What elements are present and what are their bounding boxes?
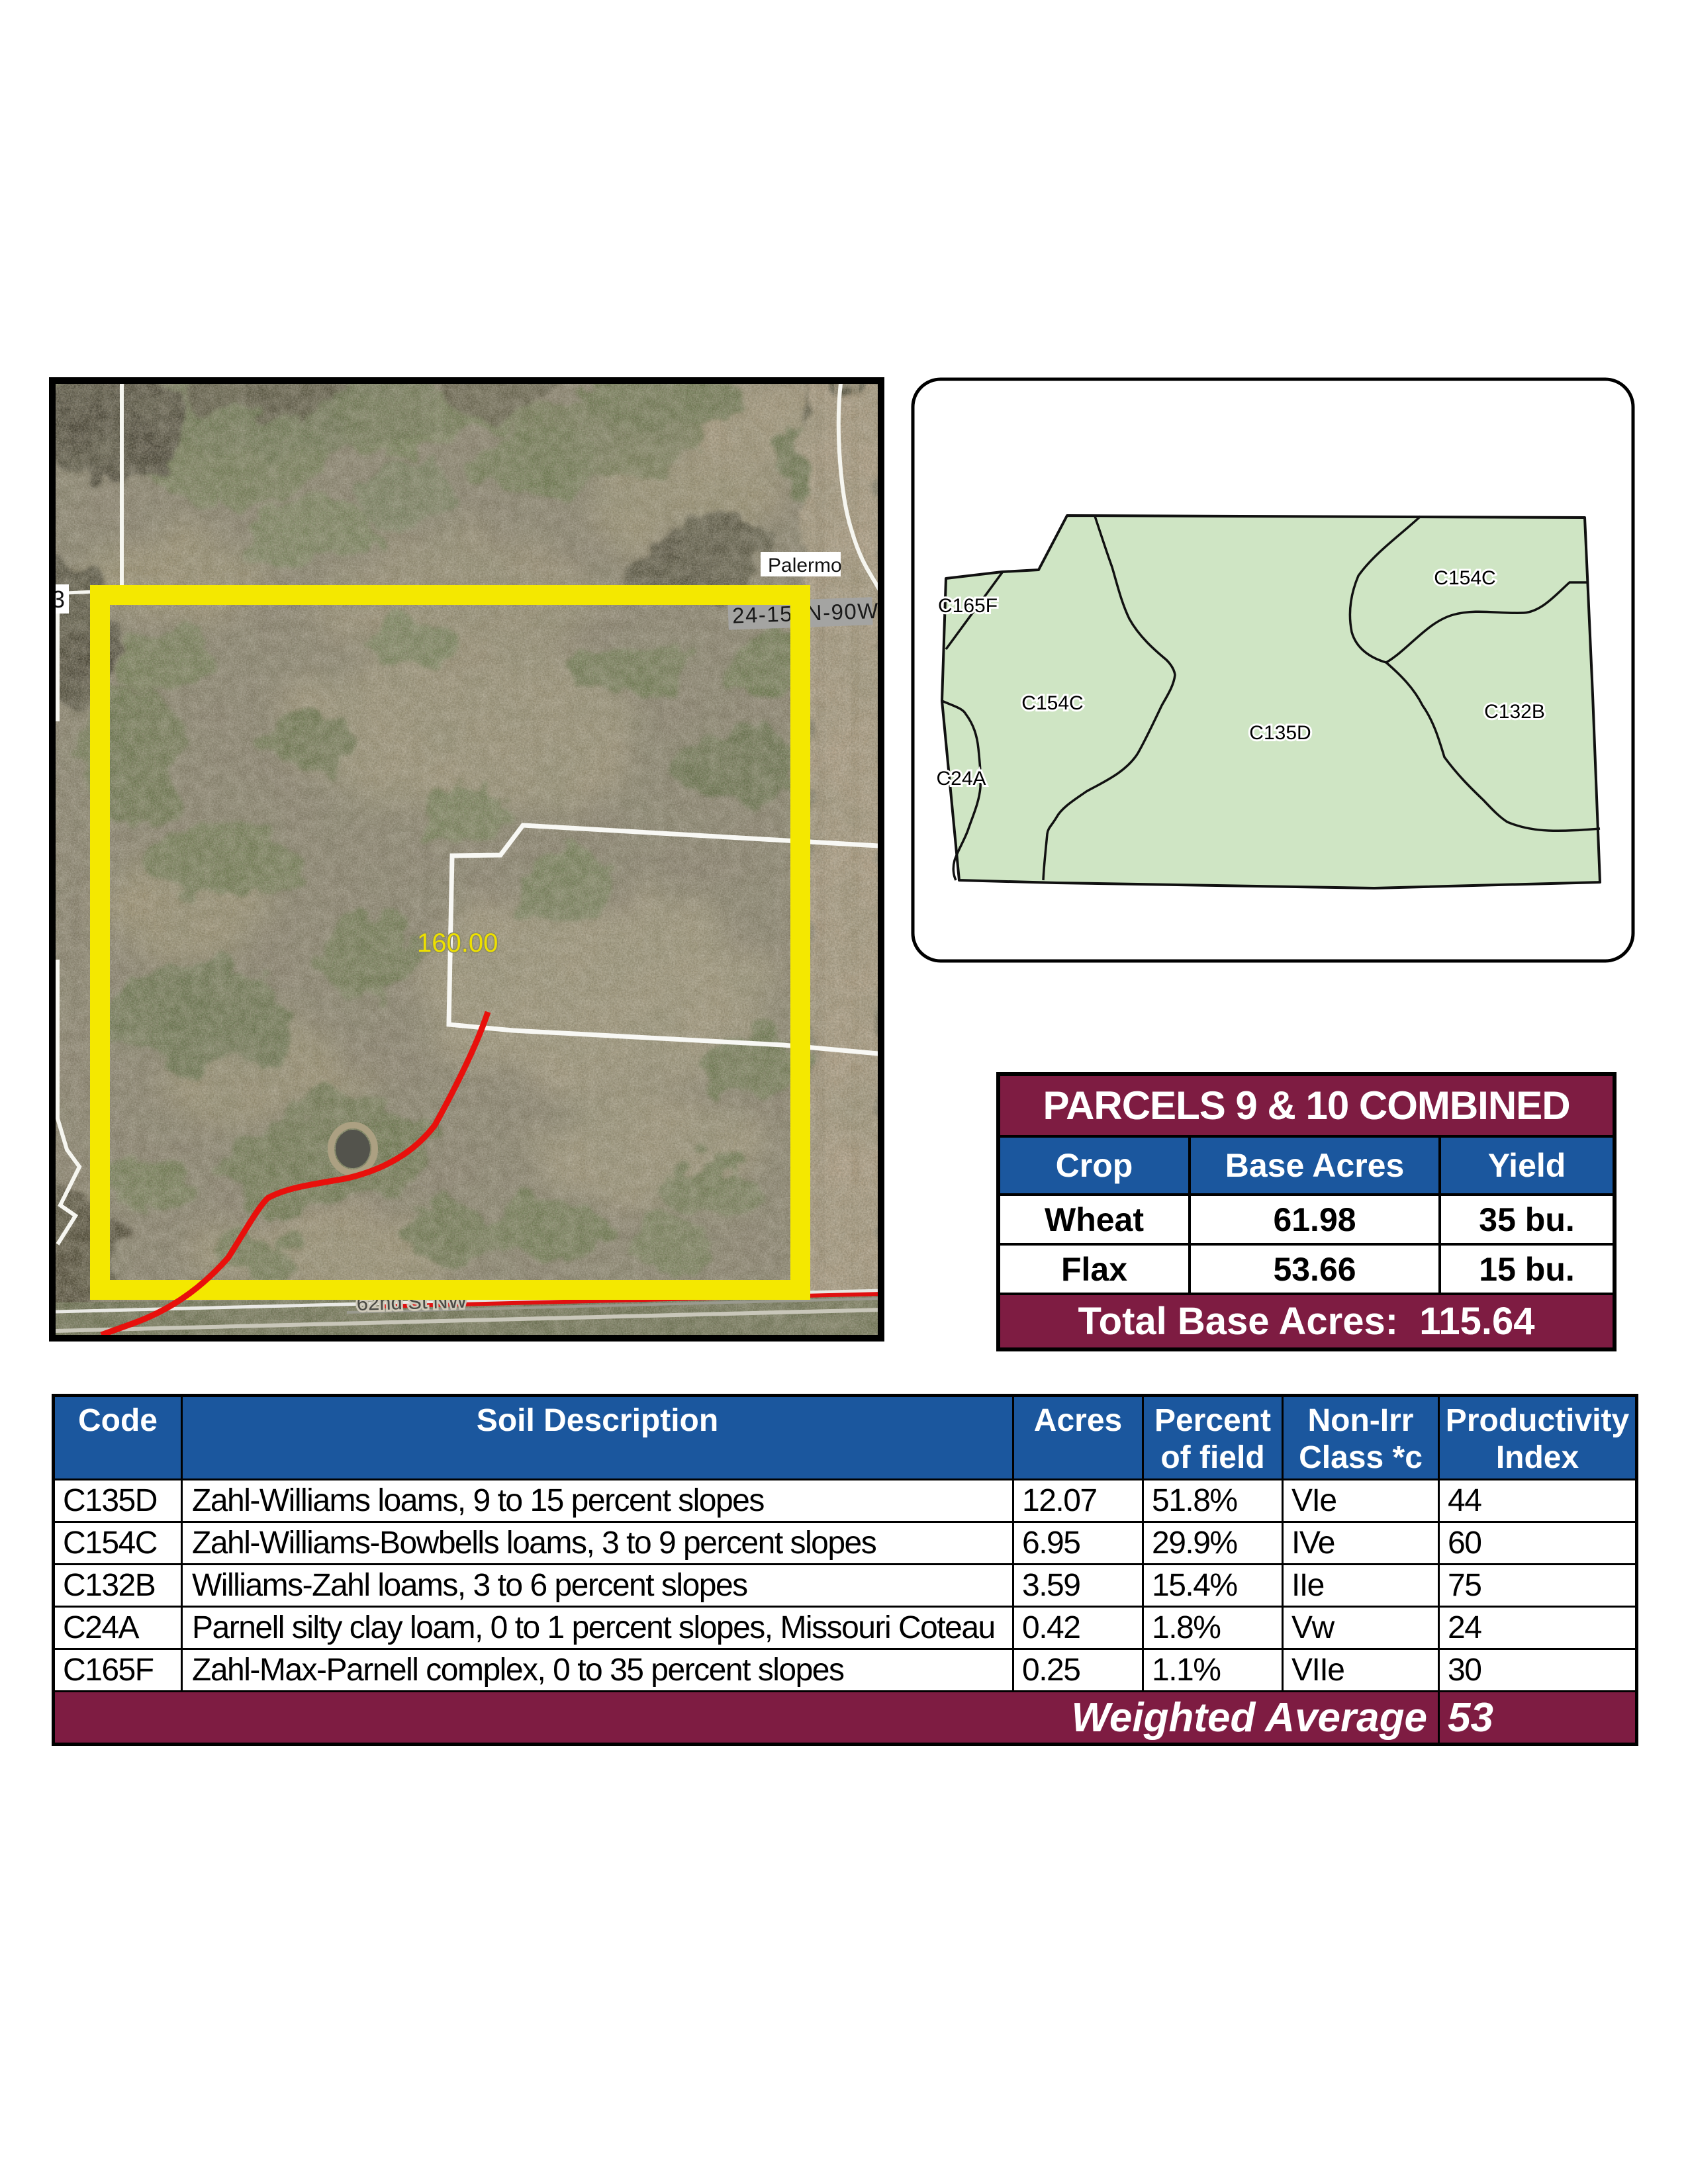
svg-text:C154C: C154C [1021,692,1083,714]
svg-text:C135D: C135D [1249,722,1311,744]
svg-text:C154C: C154C [1434,567,1495,589]
svg-text:160.00: 160.00 [417,929,498,958]
svg-text:C165F: C165F [938,595,998,617]
svg-text:Palermo: Palermo [768,555,842,576]
svg-text:C132B: C132B [1484,701,1545,723]
svg-text:C24A: C24A [936,768,986,790]
